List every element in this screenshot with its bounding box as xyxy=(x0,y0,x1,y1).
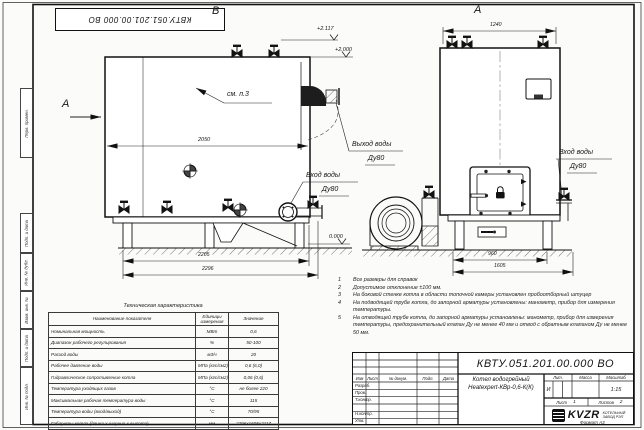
note-number: 5 xyxy=(338,315,353,338)
note-item: 5На отводящей трубе котла, до запорной а… xyxy=(338,315,634,338)
tech-header-name: Наименование показателя xyxy=(49,313,196,326)
note-item: 3На боковой стенке котла в области топоч… xyxy=(338,292,634,300)
inlet-left-dn-label: Ду80 xyxy=(322,186,338,193)
note-item: 4На подводящей трубе котла, до запорной … xyxy=(338,300,634,315)
section-a-label: А xyxy=(62,99,69,110)
tech-cell: мм xyxy=(196,418,229,430)
tech-characteristics: Техническая характеристика Наименование … xyxy=(48,303,278,430)
tech-cell: Температура уходящих газов xyxy=(49,383,196,395)
table-row: Габариты котла (длина х ширина х высота)… xyxy=(49,418,279,430)
format-label: Формат А3 xyxy=(580,421,605,426)
tech-cell: 20 xyxy=(229,349,279,361)
view-b-label: В xyxy=(212,6,219,17)
boiler-side-view xyxy=(105,46,339,248)
margin-label: Инв. № дубл. xyxy=(24,259,29,285)
dim-top-width: 1240 xyxy=(490,23,502,28)
tech-cell: 2296х1605х2117 xyxy=(229,418,279,430)
margin-label: Взам. инв. № xyxy=(24,297,29,324)
lit-header: Лит. xyxy=(544,374,572,381)
see-note-callout: см. п.3 xyxy=(227,91,249,98)
inlet-right-label: Вход воды xyxy=(559,149,593,156)
ground-hatch xyxy=(118,248,572,257)
tech-cell: °С xyxy=(196,395,229,407)
view-a-title: А xyxy=(474,5,481,16)
valve-icon xyxy=(538,37,548,48)
tech-cell: °С xyxy=(196,383,229,395)
note-text: На отводящей трубе котла, до запорной ар… xyxy=(353,315,634,338)
title-block: КВТУ.051.201.00.000 ВО Изм Лист № докум.… xyxy=(352,352,634,425)
margin-box-inv-dubl: Инв. № дубл. xyxy=(20,253,33,291)
margin-box-vzam-inv: Взам. инв. № xyxy=(20,291,33,329)
note-text: Допустимое отклонение ±100 мм. xyxy=(353,285,634,293)
notes-list: 1Все размеры для справок 2Допустимое отк… xyxy=(338,277,634,338)
tech-table-header-row: Наименование показателя Единицы измерени… xyxy=(49,313,279,326)
tech-cell: Диапазон рабочего регулирования xyxy=(49,337,196,349)
sheets-label: Листов xyxy=(599,400,614,405)
sheet-value: 1 xyxy=(573,400,576,405)
tech-cell: 70/95 xyxy=(229,406,279,418)
tech-cell: МПа (кгс/см2) xyxy=(196,360,229,372)
table-row: Максимальная рабочая температура воды°С1… xyxy=(49,395,279,407)
col-header-izm: Изм xyxy=(353,374,366,382)
margin-label: Подп. и дата xyxy=(24,220,29,247)
table-row: Температура воды (вход/выход)°С70/95 xyxy=(49,406,279,418)
top-stamp-text: КВТУ.051.201.00.000 ВО xyxy=(88,15,192,24)
col-header-podp: Подп. xyxy=(417,374,439,382)
dim-total-length: 2296 xyxy=(202,267,214,272)
col-header-data: Дата xyxy=(439,374,458,382)
row-label-razrab: Разраб. xyxy=(355,382,381,389)
tech-cell: Рабочее давление воды xyxy=(49,360,196,372)
mass-header: Масса xyxy=(572,374,599,381)
tech-cell: % xyxy=(196,337,229,349)
tech-cell: °С xyxy=(196,406,229,418)
inlet-right-dn-label: Ду80 xyxy=(570,163,586,170)
drawing-sheet: { "sheet": { "stamp_top": "КВТУ.051.201.… xyxy=(0,0,644,430)
table-row: Рабочее давление водыМПа (кгс/см2)0,6 (6… xyxy=(49,360,279,372)
tech-cell: Максимальная рабочая температура воды xyxy=(49,395,196,407)
lit-value: И xyxy=(544,381,553,398)
margin-box-perv-primen: Перв. примен. xyxy=(20,88,33,158)
boiler-front-view xyxy=(440,37,572,249)
tech-cell: Температура воды (вход/выход) xyxy=(49,406,196,418)
margin-box-podp-data-1: Подп. и дата xyxy=(20,213,33,253)
table-row: Температура уходящих газов°Сне более 220 xyxy=(49,383,279,395)
company-line2: ЗАВОД РЭП xyxy=(603,415,624,419)
tech-header-units: Единицы измерения xyxy=(196,313,229,326)
sheet-number: Лист 1 xyxy=(544,398,588,406)
dim-frame-length: 2205 xyxy=(198,253,210,258)
scale-value: 1:15 xyxy=(599,381,633,398)
note-number: 3 xyxy=(338,292,353,300)
note-item: 2Допустимое отклонение ±100 мм. xyxy=(338,285,634,293)
product-name-line2: Heatexpert-КВр-0,6-К(К) xyxy=(468,385,534,391)
tech-cell: не более 220 xyxy=(229,383,279,395)
elevation-boiler-top: +2.000 xyxy=(335,48,352,54)
row-label-nkontr: Н.контр. xyxy=(355,410,381,417)
company-name: КОТЕЛЬНЫЙ ЗАВОД РЭП xyxy=(603,411,626,420)
tech-cell: Расход воды xyxy=(49,349,196,361)
col-header-doc: № докум. xyxy=(379,374,417,382)
tech-table-title: Техническая характеристика xyxy=(48,303,278,309)
tech-cell: Номинальная мощность xyxy=(49,326,196,338)
valve-icon xyxy=(269,46,279,57)
outlet-dn-label: Ду80 xyxy=(368,155,384,162)
elevation-valve-top: +2.117 xyxy=(317,27,334,33)
tech-cell: Габариты котла (длина х ширина х высота) xyxy=(49,418,196,430)
table-row: Диапазон рабочего регулирования%50-100 xyxy=(49,337,279,349)
row-label-prov: Пров. xyxy=(355,389,381,396)
row-label-tkontr: Т.контр. xyxy=(355,396,381,403)
tech-cell: МПа (кгс/см2) xyxy=(196,372,229,384)
product-name: Котел водогрейный Heatexpert-КВр-0,6-К(К… xyxy=(458,377,544,391)
sheets-total: Листов 2 xyxy=(588,398,633,406)
dim-frame-width: 960 xyxy=(488,252,497,257)
product-name-line1: Котел водогрейный xyxy=(472,377,529,383)
margin-box-inv-podl: Инв. № подл. xyxy=(20,367,33,425)
table-row: Гидравлическое сопротивление котлаМПа (к… xyxy=(49,372,279,384)
scale-header: Масштаб xyxy=(599,374,633,381)
margin-label: Подп. и дата xyxy=(24,335,29,362)
tech-cell: МВт xyxy=(196,326,229,338)
tech-cell: 0,6 xyxy=(229,326,279,338)
sheets-value: 2 xyxy=(620,400,623,405)
dim-total-width: 1605 xyxy=(494,264,506,269)
tech-cell: 50-100 xyxy=(229,337,279,349)
note-number: 4 xyxy=(338,300,353,315)
elevation-ground: 0.000 xyxy=(329,235,343,241)
margin-label: Перв. примен. xyxy=(24,109,29,138)
tech-cell: 0,06 (0,6) xyxy=(229,372,279,384)
tech-cell: Гидравлическое сопротивление котла xyxy=(49,372,196,384)
tech-cell: м3/ч xyxy=(196,349,229,361)
note-text: На боковой стенке котла в области топочн… xyxy=(353,292,634,300)
note-item: 1Все размеры для справок xyxy=(338,277,634,285)
tech-table: Наименование показателя Единицы измерени… xyxy=(48,312,279,430)
note-number: 1 xyxy=(338,277,353,285)
tech-header-value: Значение xyxy=(229,313,279,326)
kvzr-logo-icon xyxy=(552,409,565,422)
col-header-list: Лист xyxy=(366,374,379,382)
tech-cell: 0,6 (6,0) xyxy=(229,360,279,372)
valve-icon xyxy=(424,187,434,198)
inlet-left-label: Вход воды xyxy=(306,172,340,179)
margin-label: Инв. № подл. xyxy=(24,383,29,410)
note-number: 2 xyxy=(338,285,353,293)
valve-icon xyxy=(232,46,242,57)
table-row: Расход водым3/ч20 xyxy=(49,349,279,361)
valve-icon xyxy=(462,37,472,48)
sheet-label: Лист xyxy=(556,400,567,405)
margin-box-podp-data-2: Подп. и дата xyxy=(20,329,33,367)
outlet-label: Выход воды xyxy=(352,141,391,148)
note-text: Все размеры для справок xyxy=(353,277,634,285)
row-label-utv: Утв. xyxy=(355,417,381,424)
doc-number: КВТУ.051.201.00.000 ВО xyxy=(458,353,633,374)
note-text: На подводящей трубе котла, до запорной а… xyxy=(353,300,634,315)
top-stamp: КВТУ.051.201.00.000 ВО xyxy=(55,8,225,31)
table-row: Номинальная мощностьМВт0,6 xyxy=(49,326,279,338)
tech-cell: 115 xyxy=(229,395,279,407)
dim-body-length: 2050 xyxy=(198,138,210,144)
fan-blower xyxy=(370,187,438,250)
valve-icon xyxy=(447,37,457,48)
